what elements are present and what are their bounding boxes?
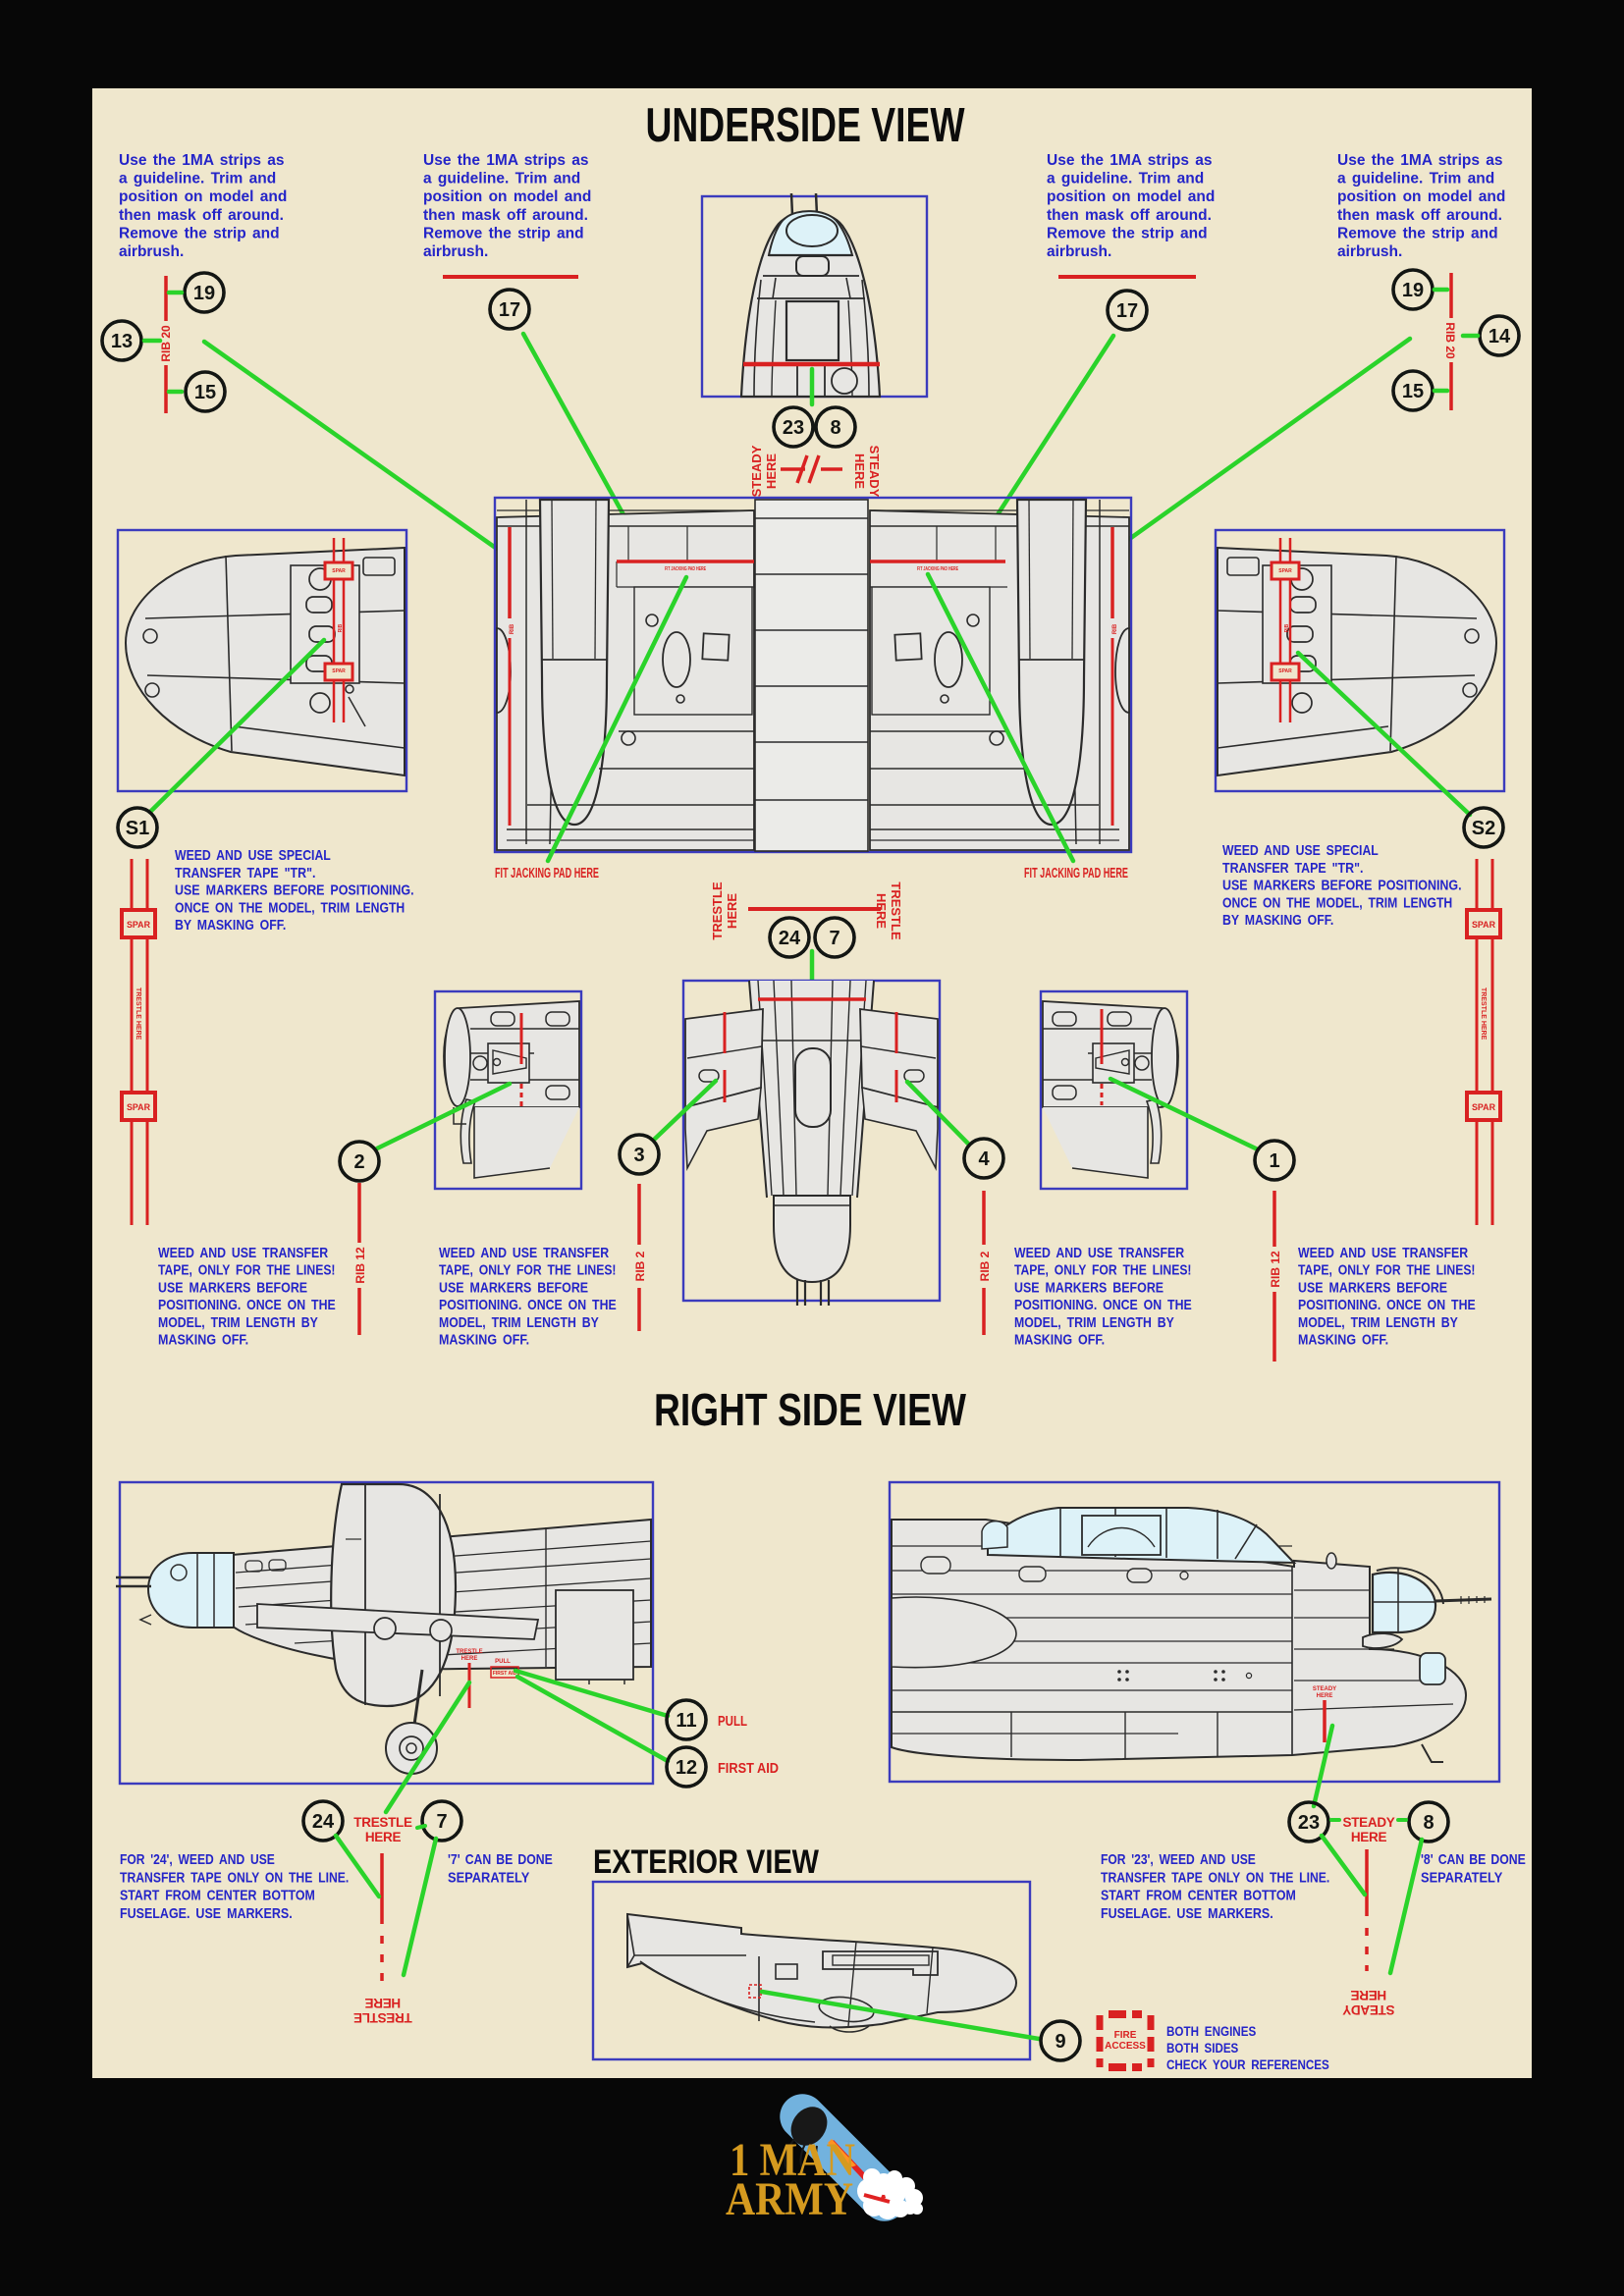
- svg-text:2: 2: [353, 1151, 364, 1173]
- svg-text:FOR '23', WEED AND USE: FOR '23', WEED AND USE: [1101, 1851, 1256, 1868]
- svg-text:'8' CAN BE DONE: '8' CAN BE DONE: [1421, 1851, 1526, 1868]
- svg-text:9: 9: [1055, 2031, 1065, 2053]
- svg-text:SPAR: SPAR: [1278, 668, 1292, 674]
- svg-text:RIB 20: RIB 20: [159, 325, 173, 362]
- svg-text:FIRE: FIRE: [1114, 2030, 1137, 2041]
- svg-text:USE MARKERS BEFORE POSITIONING: USE MARKERS BEFORE POSITIONING.: [175, 882, 414, 899]
- svg-text:START FROM CENTER BOTTOM: START FROM CENTER BOTTOM: [120, 1888, 315, 1904]
- svg-text:STEADY: STEADY: [749, 445, 764, 497]
- svg-text:ACCESS: ACCESS: [1105, 2041, 1146, 2052]
- svg-text:FIT JACKING PAD HERE: FIT JACKING PAD HERE: [1024, 866, 1128, 881]
- svg-text:airbrush.: airbrush.: [423, 243, 488, 260]
- svg-text:SPAR: SPAR: [332, 668, 346, 674]
- svg-text:airbrush.: airbrush.: [1337, 243, 1402, 260]
- svg-text:POSITIONING. ONCE ON THE: POSITIONING. ONCE ON THE: [439, 1297, 617, 1313]
- svg-text:airbrush.: airbrush.: [1047, 243, 1111, 260]
- svg-text:8: 8: [830, 417, 840, 439]
- svg-text:TRANSFER TAPE "TR".: TRANSFER TAPE "TR".: [175, 865, 315, 881]
- svg-text:WEED AND USE TRANSFER: WEED AND USE TRANSFER: [439, 1245, 609, 1261]
- svg-text:WEED AND USE TRANSFER: WEED AND USE TRANSFER: [1014, 1245, 1184, 1261]
- svg-text:SPAR: SPAR: [127, 1102, 150, 1112]
- svg-text:ONCE ON THE MODEL, TRIM LENGTH: ONCE ON THE MODEL, TRIM LENGTH: [175, 899, 405, 916]
- svg-text:USE MARKERS BEFORE: USE MARKERS BEFORE: [1298, 1279, 1447, 1296]
- svg-text:position on model and: position on model and: [1047, 188, 1215, 205]
- svg-text:4: 4: [978, 1148, 990, 1170]
- svg-text:EXTERIOR VIEW: EXTERIOR VIEW: [593, 1843, 820, 1881]
- svg-text:MASKING OFF.: MASKING OFF.: [1298, 1332, 1388, 1349]
- svg-text:HERE: HERE: [365, 1996, 402, 2010]
- svg-text:Use the 1MA strips as: Use the 1MA strips as: [119, 152, 285, 169]
- svg-text:BOTH ENGINES: BOTH ENGINES: [1166, 2023, 1256, 2039]
- svg-text:S1: S1: [126, 818, 149, 839]
- svg-text:15: 15: [194, 382, 216, 403]
- svg-text:TAPE, ONLY FOR THE LINES!: TAPE, ONLY FOR THE LINES!: [1298, 1262, 1476, 1279]
- svg-text:RIB: RIB: [338, 623, 344, 632]
- svg-text:BY MASKING OFF.: BY MASKING OFF.: [175, 917, 286, 934]
- svg-text:then mask off around.: then mask off around.: [423, 207, 588, 224]
- svg-text:14: 14: [1489, 326, 1511, 347]
- svg-text:TRESTLE HERE: TRESTLE HERE: [1480, 988, 1487, 1041]
- svg-text:ARMY: ARMY: [726, 2173, 853, 2225]
- svg-text:TRESTLE: TRESTLE: [456, 1649, 482, 1655]
- svg-text:CHECK YOUR REFERENCES: CHECK YOUR REFERENCES: [1166, 2056, 1329, 2072]
- svg-text:POSITIONING. ONCE ON THE: POSITIONING. ONCE ON THE: [1298, 1297, 1476, 1313]
- svg-text:ONCE ON THE MODEL, TRIM LENGTH: ONCE ON THE MODEL, TRIM LENGTH: [1222, 894, 1452, 911]
- svg-text:USE MARKERS BEFORE: USE MARKERS BEFORE: [439, 1279, 588, 1296]
- svg-text:USE MARKERS BEFORE: USE MARKERS BEFORE: [158, 1279, 307, 1296]
- svg-text:WEED AND USE SPECIAL: WEED AND USE SPECIAL: [175, 847, 331, 864]
- svg-text:13: 13: [111, 331, 133, 352]
- svg-text:PULL: PULL: [718, 1714, 747, 1730]
- svg-text:HERE: HERE: [852, 454, 867, 489]
- svg-text:Remove the strip and: Remove the strip and: [1337, 225, 1498, 241]
- svg-text:RIB 12: RIB 12: [353, 1247, 367, 1284]
- svg-text:WEED AND USE TRANSFER: WEED AND USE TRANSFER: [158, 1245, 328, 1261]
- svg-text:MASKING OFF.: MASKING OFF.: [158, 1332, 248, 1349]
- svg-text:SPAR: SPAR: [127, 920, 150, 930]
- svg-text:START FROM CENTER BOTTOM: START FROM CENTER BOTTOM: [1101, 1888, 1296, 1904]
- svg-text:SPAR: SPAR: [1278, 568, 1292, 574]
- svg-text:STEADY: STEADY: [1343, 1815, 1395, 1830]
- svg-text:Use the 1MA strips as: Use the 1MA strips as: [423, 152, 589, 169]
- svg-text:3: 3: [633, 1145, 644, 1166]
- svg-text:17: 17: [499, 299, 520, 321]
- svg-text:7: 7: [829, 928, 839, 949]
- svg-text:HERE: HERE: [1351, 1830, 1387, 1844]
- svg-text:HERE: HERE: [1351, 1988, 1387, 2002]
- svg-text:HERE: HERE: [365, 1830, 402, 1844]
- svg-text:SPAR: SPAR: [1472, 1102, 1495, 1112]
- svg-text:TRANSFER TAPE ONLY ON THE LINE: TRANSFER TAPE ONLY ON THE LINE.: [1101, 1869, 1329, 1886]
- svg-text:MODEL, TRIM LENGTH BY: MODEL, TRIM LENGTH BY: [1298, 1314, 1458, 1331]
- svg-text:23: 23: [1298, 1812, 1320, 1834]
- svg-text:a guideline. Trim and: a guideline. Trim and: [423, 171, 580, 187]
- svg-text:7: 7: [436, 1811, 447, 1833]
- svg-text:8: 8: [1423, 1812, 1434, 1834]
- svg-text:RIB: RIB: [510, 623, 515, 634]
- svg-text:'7' CAN BE DONE: '7' CAN BE DONE: [448, 1851, 553, 1868]
- svg-text:TAPE, ONLY FOR THE LINES!: TAPE, ONLY FOR THE LINES!: [439, 1262, 617, 1279]
- svg-text:HERE: HERE: [461, 1656, 478, 1662]
- svg-text:SPAR: SPAR: [332, 568, 346, 574]
- svg-text:POSITIONING. ONCE ON THE: POSITIONING. ONCE ON THE: [158, 1297, 336, 1313]
- svg-text:19: 19: [1402, 280, 1424, 301]
- svg-text:a guideline. Trim and: a guideline. Trim and: [1047, 171, 1204, 187]
- svg-text:FIT JACKING PAD HERE: FIT JACKING PAD HERE: [917, 566, 958, 572]
- svg-text:then mask off around.: then mask off around.: [1047, 207, 1212, 224]
- svg-text:position on model and: position on model and: [1337, 188, 1505, 205]
- svg-text:position on model and: position on model and: [423, 188, 591, 205]
- svg-text:a guideline. Trim and: a guideline. Trim and: [119, 171, 276, 187]
- svg-text:MODEL, TRIM LENGTH BY: MODEL, TRIM LENGTH BY: [158, 1314, 318, 1331]
- svg-text:BY MASKING OFF.: BY MASKING OFF.: [1222, 912, 1333, 929]
- svg-text:FIRST AID: FIRST AID: [493, 1671, 517, 1677]
- svg-text:SPAR: SPAR: [1472, 920, 1495, 930]
- svg-text:a guideline. Trim and: a guideline. Trim and: [1337, 171, 1494, 187]
- svg-text:11: 11: [676, 1710, 696, 1732]
- svg-text:TRESTLE HERE: TRESTLE HERE: [135, 988, 141, 1041]
- svg-text:HERE: HERE: [725, 893, 739, 929]
- svg-text:airbrush.: airbrush.: [119, 243, 184, 260]
- svg-text:MODEL, TRIM LENGTH BY: MODEL, TRIM LENGTH BY: [439, 1314, 599, 1331]
- svg-text:SEPARATELY: SEPARATELY: [448, 1869, 529, 1886]
- svg-text:position on model and: position on model and: [119, 188, 287, 205]
- svg-text:RIB 12: RIB 12: [1269, 1251, 1282, 1288]
- svg-text:Use the 1MA strips as: Use the 1MA strips as: [1337, 152, 1503, 169]
- svg-text:23: 23: [783, 417, 804, 439]
- svg-text:UNDERSIDE VIEW: UNDERSIDE VIEW: [646, 99, 966, 152]
- svg-text:USE MARKERS BEFORE: USE MARKERS BEFORE: [1014, 1279, 1164, 1296]
- svg-text:FIT JACKING PAD HERE: FIT JACKING PAD HERE: [495, 866, 599, 881]
- svg-text:TRESTLE: TRESTLE: [889, 881, 903, 940]
- svg-text:FIRST AID: FIRST AID: [718, 1761, 779, 1777]
- svg-text:17: 17: [1116, 300, 1138, 322]
- svg-text:12: 12: [676, 1757, 697, 1779]
- svg-text:HERE: HERE: [1317, 1693, 1333, 1699]
- svg-text:TRANSFER TAPE "TR".: TRANSFER TAPE "TR".: [1222, 860, 1363, 877]
- svg-text:TRANSFER TAPE ONLY ON THE LINE: TRANSFER TAPE ONLY ON THE LINE.: [120, 1869, 349, 1886]
- svg-text:15: 15: [1402, 381, 1424, 402]
- svg-text:then mask off around.: then mask off around.: [119, 207, 284, 224]
- svg-text:HERE: HERE: [764, 454, 779, 489]
- svg-text:USE MARKERS BEFORE POSITIONING: USE MARKERS BEFORE POSITIONING.: [1222, 878, 1462, 894]
- svg-text:WEED AND USE SPECIAL: WEED AND USE SPECIAL: [1222, 842, 1379, 859]
- svg-text:FOR '24', WEED AND USE: FOR '24', WEED AND USE: [120, 1851, 275, 1868]
- svg-text:POSITIONING. ONCE ON THE: POSITIONING. ONCE ON THE: [1014, 1297, 1192, 1313]
- svg-text:MASKING OFF.: MASKING OFF.: [439, 1332, 529, 1349]
- svg-text:TAPE, ONLY FOR THE LINES!: TAPE, ONLY FOR THE LINES!: [158, 1262, 336, 1279]
- svg-text:24: 24: [312, 1811, 335, 1833]
- svg-text:1: 1: [1269, 1150, 1279, 1172]
- svg-text:FUSELAGE. USE MARKERS.: FUSELAGE. USE MARKERS.: [120, 1905, 293, 1922]
- svg-text:TRESTLE: TRESTLE: [353, 1815, 412, 1830]
- svg-text:then mask off around.: then mask off around.: [1337, 207, 1502, 224]
- svg-text:Remove the strip and: Remove the strip and: [119, 225, 280, 241]
- svg-text:TRESTLE: TRESTLE: [710, 881, 725, 940]
- svg-text:RIGHT SIDE VIEW: RIGHT SIDE VIEW: [654, 1384, 966, 1435]
- svg-text:RIB: RIB: [1112, 623, 1118, 634]
- svg-text:MASKING OFF.: MASKING OFF.: [1014, 1332, 1105, 1349]
- svg-text:MODEL, TRIM LENGTH BY: MODEL, TRIM LENGTH BY: [1014, 1314, 1174, 1331]
- svg-text:BOTH SIDES: BOTH SIDES: [1166, 2040, 1238, 2056]
- svg-text:STEADY: STEADY: [1313, 1686, 1336, 1692]
- svg-text:RIB 2: RIB 2: [978, 1251, 992, 1281]
- svg-text:WEED AND USE TRANSFER: WEED AND USE TRANSFER: [1298, 1245, 1468, 1261]
- svg-text:Remove the strip and: Remove the strip and: [1047, 225, 1208, 241]
- svg-text:RIB: RIB: [1284, 623, 1290, 632]
- svg-text:19: 19: [193, 283, 215, 304]
- svg-text:PULL: PULL: [495, 1659, 511, 1665]
- svg-text:TRESTLE: TRESTLE: [353, 2010, 412, 2025]
- svg-text:HERE: HERE: [874, 893, 889, 929]
- svg-text:Use the 1MA strips as: Use the 1MA strips as: [1047, 152, 1213, 169]
- svg-text:Remove the strip and: Remove the strip and: [423, 225, 584, 241]
- svg-text:S2: S2: [1472, 818, 1495, 839]
- svg-text:FIT JACKING PAD HERE: FIT JACKING PAD HERE: [665, 566, 706, 572]
- svg-text:STEADY: STEADY: [867, 446, 882, 498]
- svg-text:FUSELAGE. USE MARKERS.: FUSELAGE. USE MARKERS.: [1101, 1905, 1273, 1922]
- svg-text:RIB 20: RIB 20: [1443, 322, 1457, 359]
- svg-text:24: 24: [779, 928, 801, 949]
- svg-text:TAPE, ONLY FOR THE LINES!: TAPE, ONLY FOR THE LINES!: [1014, 1262, 1192, 1279]
- svg-text:RIB 2: RIB 2: [633, 1251, 647, 1281]
- svg-text:SEPARATELY: SEPARATELY: [1421, 1869, 1502, 1886]
- svg-text:STEADY: STEADY: [1342, 2002, 1394, 2017]
